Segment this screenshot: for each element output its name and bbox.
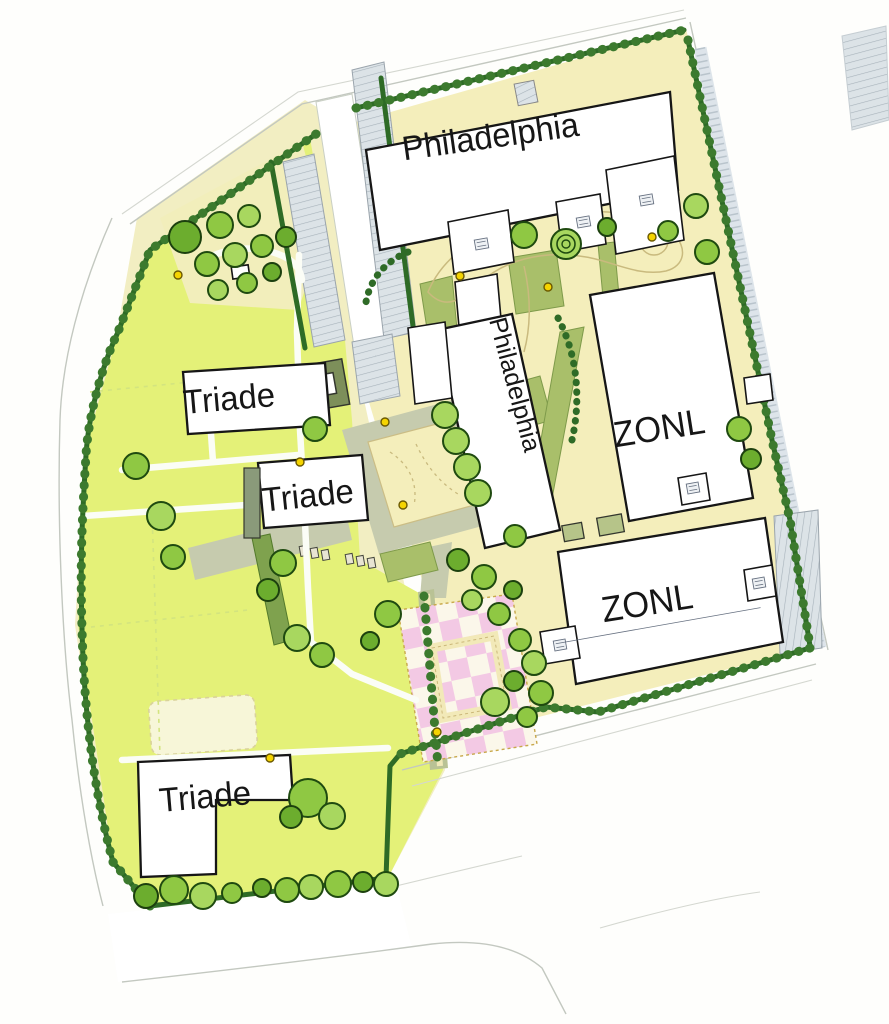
tree-icon bbox=[684, 194, 708, 218]
tree-icon bbox=[447, 549, 469, 571]
label-triade-upper: Triade bbox=[182, 376, 277, 422]
tree-icon bbox=[123, 453, 149, 479]
tree-icon bbox=[472, 565, 496, 589]
tree-icon bbox=[263, 263, 281, 281]
tree-icon bbox=[280, 806, 302, 828]
tree-icon bbox=[299, 875, 323, 899]
tree-icon bbox=[374, 872, 398, 896]
tree-icon bbox=[443, 428, 469, 454]
tree-icon bbox=[432, 402, 458, 428]
tree-icon bbox=[598, 218, 616, 236]
tree-icon bbox=[462, 590, 482, 610]
tree-icon bbox=[658, 221, 678, 241]
building-zonl-upper-tab bbox=[744, 374, 773, 404]
tree-icon bbox=[361, 632, 379, 650]
tree-icon bbox=[237, 273, 257, 293]
spiral-tree-icon bbox=[551, 229, 581, 259]
label-triade-bottom: Triade bbox=[158, 774, 253, 820]
tree-icon bbox=[251, 235, 273, 257]
tree-icon bbox=[195, 252, 219, 276]
tree-icon bbox=[481, 688, 509, 716]
lamp-icon bbox=[456, 272, 464, 280]
lamp-icon bbox=[266, 754, 274, 762]
lawn-field-patch bbox=[148, 694, 258, 755]
lamp-icon bbox=[296, 458, 304, 466]
tree-icon bbox=[509, 629, 531, 651]
tree-icon bbox=[160, 876, 188, 904]
tree-icon bbox=[253, 879, 271, 897]
cutout-inner-curve bbox=[600, 892, 760, 928]
tree-icon bbox=[319, 803, 345, 829]
tree-icon bbox=[303, 417, 327, 441]
bottom-road-curve bbox=[396, 856, 522, 886]
tree-icon bbox=[275, 878, 299, 902]
tree-icon bbox=[238, 205, 260, 227]
lamp-icon bbox=[433, 728, 441, 736]
shrub-patch bbox=[508, 250, 564, 314]
tree-icon bbox=[375, 601, 401, 627]
tree-icon bbox=[270, 550, 296, 576]
tree-icon bbox=[353, 872, 373, 892]
site-plan: Philadelphia Philadelphia ZONL ZONL Tria… bbox=[0, 0, 889, 1024]
site-plan-page: Philadelphia Philadelphia ZONL ZONL Tria… bbox=[0, 0, 889, 1024]
tree-icon bbox=[257, 579, 279, 601]
tree-icon bbox=[695, 240, 719, 264]
lamp-icon bbox=[381, 418, 389, 426]
tree-icon bbox=[454, 454, 480, 480]
shed bbox=[244, 468, 260, 538]
tree-icon bbox=[284, 625, 310, 651]
tree-icon bbox=[727, 417, 751, 441]
tree-icon bbox=[223, 243, 247, 267]
tree-icon bbox=[310, 643, 334, 667]
tree-icon bbox=[276, 227, 296, 247]
entrance-paving-square bbox=[514, 80, 538, 105]
tree-icon bbox=[147, 502, 175, 530]
tree-icon bbox=[208, 280, 228, 300]
top-right-paving-sliver bbox=[842, 26, 889, 130]
tree-icon bbox=[529, 681, 553, 705]
tree-icon bbox=[504, 581, 522, 599]
tree-icon bbox=[325, 871, 351, 897]
tree-icon bbox=[169, 221, 201, 253]
tree-icon bbox=[517, 707, 537, 727]
lamp-icon bbox=[174, 271, 182, 279]
tree-icon bbox=[522, 651, 546, 675]
lamp-icon bbox=[544, 283, 552, 291]
tree-icon bbox=[207, 212, 233, 238]
lamp-icon bbox=[648, 233, 656, 241]
tree-icon bbox=[511, 222, 537, 248]
tree-icon bbox=[222, 883, 242, 903]
tree-icon bbox=[504, 671, 524, 691]
tree-icon bbox=[161, 545, 185, 569]
building-philadelphia-mid-wing bbox=[408, 322, 452, 404]
tree-icon bbox=[134, 884, 158, 908]
parking-strip-south bbox=[352, 334, 400, 404]
tree-icon bbox=[504, 525, 526, 547]
lamp-icon bbox=[399, 501, 407, 509]
tree-icon bbox=[488, 603, 510, 625]
tree-icon bbox=[741, 449, 761, 469]
tree-icon bbox=[190, 883, 216, 909]
tree-icon bbox=[465, 480, 491, 506]
